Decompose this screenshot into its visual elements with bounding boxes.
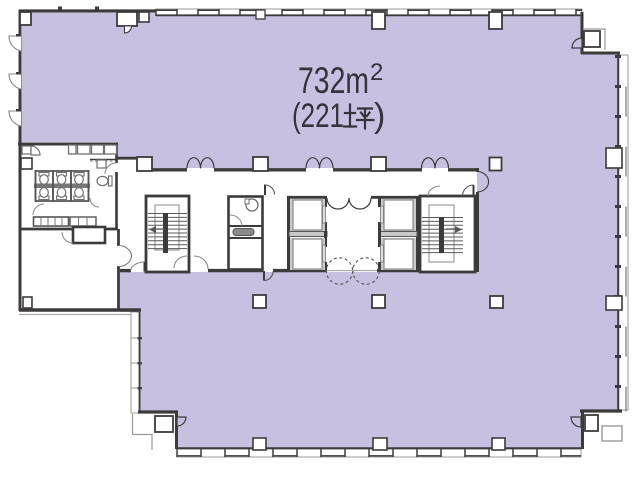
svg-text:732m: 732m xyxy=(298,60,369,101)
svg-text:): ) xyxy=(374,97,385,135)
svg-text:2: 2 xyxy=(370,59,383,86)
svg-text:(221: (221 xyxy=(292,97,344,135)
